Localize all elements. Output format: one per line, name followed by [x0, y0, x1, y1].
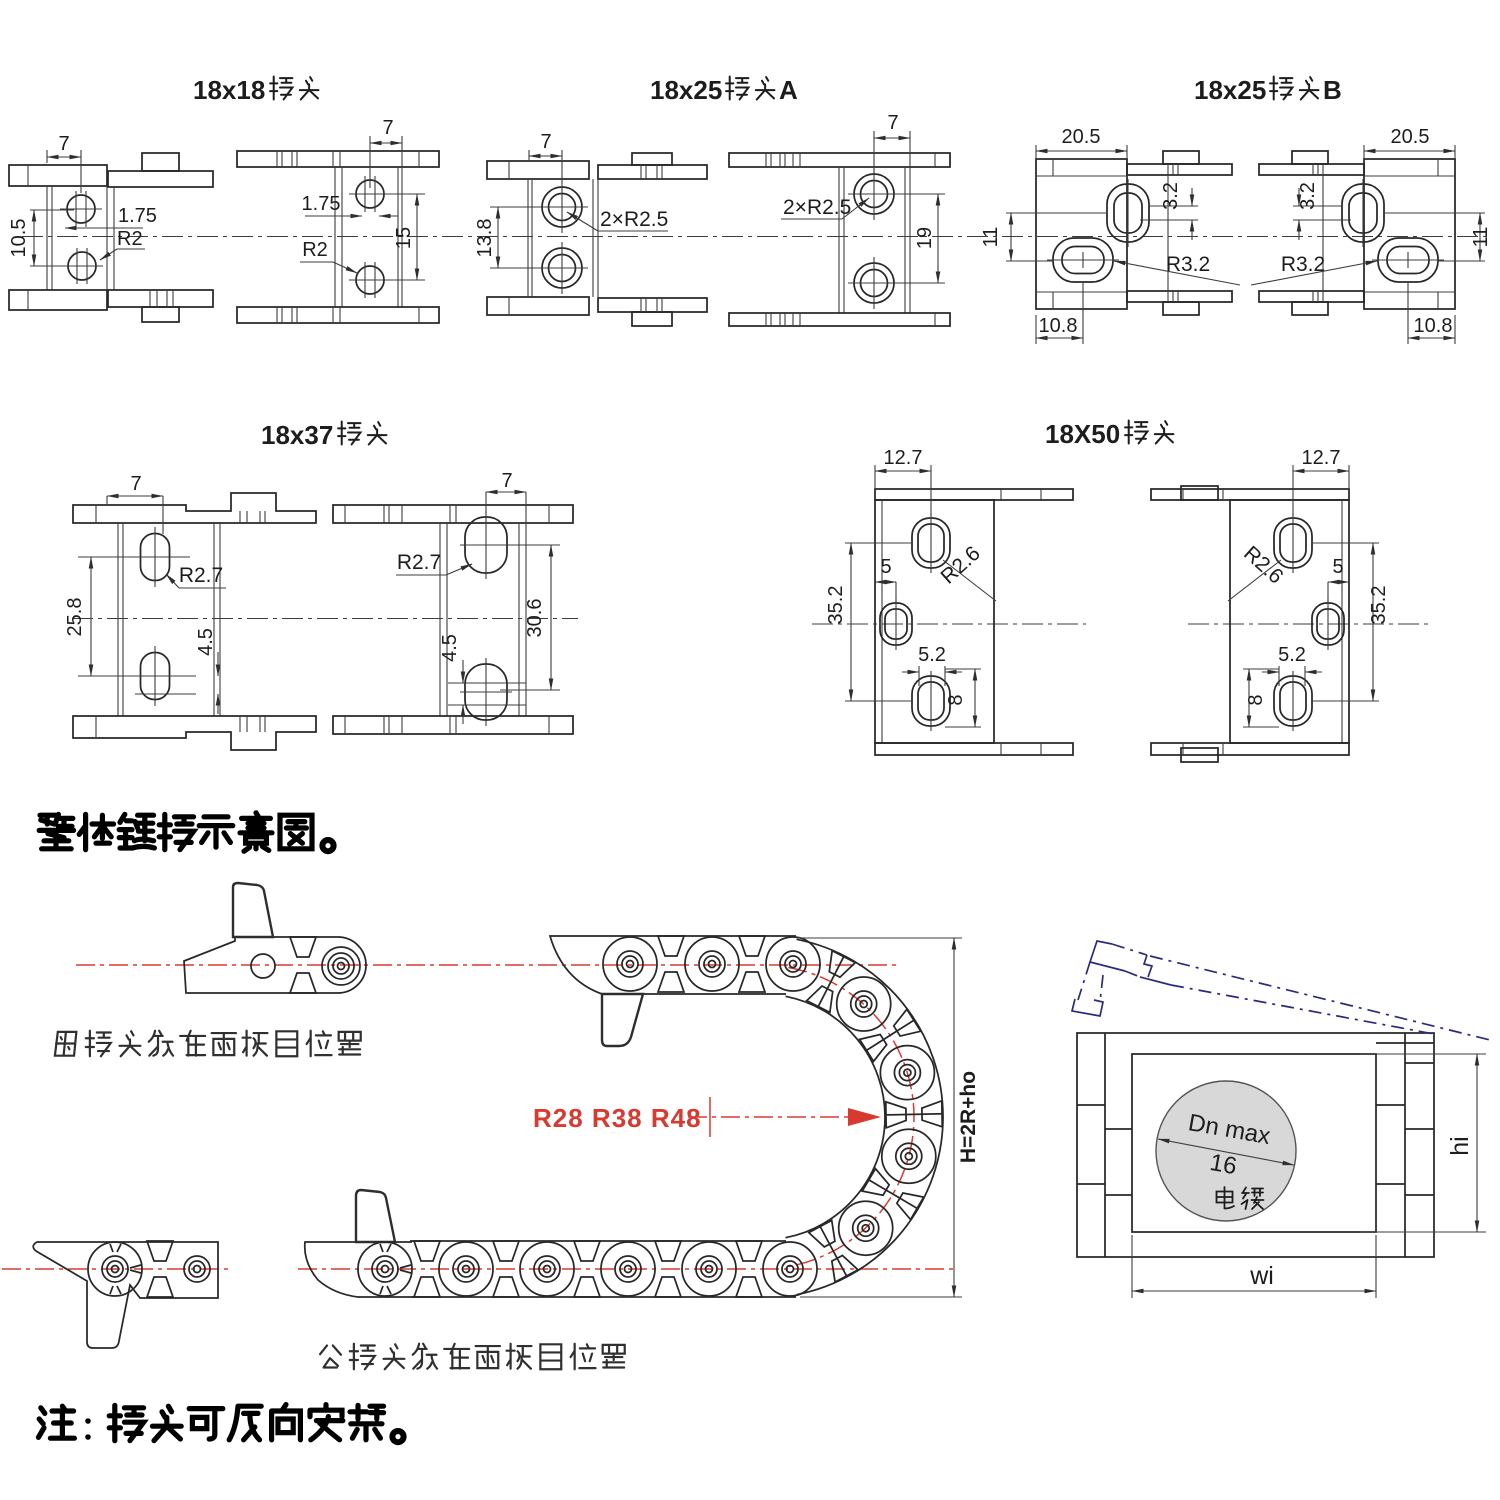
svg-text:13.8: 13.8 [474, 219, 496, 258]
svg-text:R2.7: R2.7 [397, 551, 441, 574]
svg-text:18x25: 18x25 [650, 75, 722, 105]
svg-text:1.75: 1.75 [118, 205, 157, 227]
svg-text:18x25: 18x25 [1194, 75, 1266, 105]
svg-text:R2: R2 [117, 228, 143, 250]
svg-text:5.2: 5.2 [1278, 644, 1306, 666]
svg-text:3.2: 3.2 [1160, 182, 1182, 210]
svg-text:10.8: 10.8 [1039, 315, 1078, 337]
svg-text:5.2: 5.2 [918, 644, 946, 666]
svg-text:A: A [779, 75, 798, 105]
svg-text:10.5: 10.5 [8, 219, 30, 258]
svg-text:4.5: 4.5 [439, 634, 461, 662]
svg-text:19: 19 [914, 227, 936, 249]
svg-text:20.5: 20.5 [1391, 126, 1430, 148]
svg-text:12.7: 12.7 [1302, 447, 1341, 469]
svg-text:16: 16 [1208, 1149, 1239, 1180]
svg-text:2×R2.5: 2×R2.5 [783, 196, 851, 219]
svg-text:11: 11 [980, 227, 1002, 248]
svg-text:35.2: 35.2 [1368, 586, 1390, 625]
svg-text:20.5: 20.5 [1062, 126, 1101, 148]
svg-text:R28 R38 R48: R28 R38 R48 [533, 1103, 702, 1133]
svg-text:B: B [1323, 75, 1342, 105]
svg-text:35.2: 35.2 [825, 586, 847, 625]
svg-text:8: 8 [1245, 694, 1267, 705]
svg-text:4.5: 4.5 [195, 628, 217, 656]
svg-text:18X50: 18X50 [1045, 419, 1120, 449]
svg-text:R2: R2 [302, 239, 328, 261]
svg-text:7: 7 [501, 470, 512, 492]
svg-text:2×R2.5: 2×R2.5 [600, 208, 668, 231]
svg-text:7: 7 [382, 117, 393, 139]
svg-text:3.2: 3.2 [1297, 182, 1319, 210]
svg-text:wi: wi [1249, 1262, 1274, 1290]
svg-text:12.7: 12.7 [884, 447, 923, 469]
svg-text:7: 7 [540, 131, 551, 153]
svg-text:7: 7 [130, 473, 141, 495]
svg-text:30.6: 30.6 [524, 599, 546, 638]
svg-text:7: 7 [887, 112, 898, 134]
svg-text:10.8: 10.8 [1414, 315, 1453, 337]
svg-text:H=2R+ho: H=2R+ho [957, 1071, 980, 1163]
svg-text:7: 7 [58, 133, 69, 155]
svg-text:R2.7: R2.7 [179, 564, 223, 587]
svg-text:1.75: 1.75 [302, 193, 341, 215]
svg-text:25.8: 25.8 [64, 598, 86, 637]
svg-text:5: 5 [1332, 556, 1343, 578]
svg-text:hi: hi [1446, 1136, 1474, 1155]
svg-text:18x37: 18x37 [261, 420, 333, 450]
svg-text:5: 5 [880, 556, 891, 578]
svg-text:8: 8 [945, 694, 967, 705]
svg-text:15: 15 [393, 227, 415, 249]
svg-text:11: 11 [1470, 227, 1492, 248]
svg-text:18x18: 18x18 [193, 75, 265, 105]
